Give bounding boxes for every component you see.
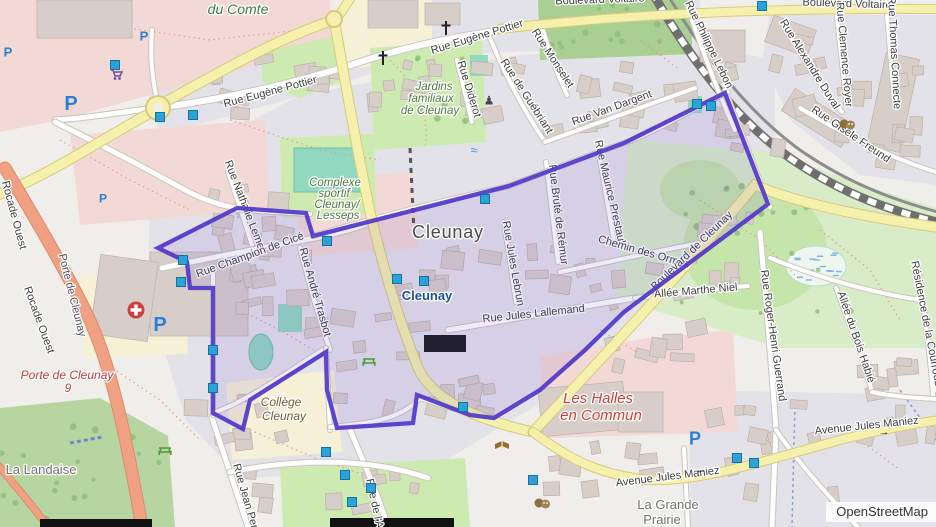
tree bbox=[12, 500, 18, 506]
tree bbox=[759, 311, 763, 315]
openstreetmap-canvas[interactable]: Boulevard VoltaireBoulevard VoltaireRue … bbox=[0, 0, 936, 527]
tree bbox=[816, 267, 821, 272]
boundary-vertex-marker[interactable] bbox=[693, 100, 702, 109]
tree bbox=[91, 477, 95, 481]
tree bbox=[619, 38, 625, 44]
tree bbox=[657, 39, 662, 44]
dark-structure bbox=[40, 519, 152, 527]
tree bbox=[92, 426, 99, 433]
roundabout bbox=[153, 103, 163, 113]
tree bbox=[789, 251, 794, 256]
tree bbox=[624, 7, 629, 12]
boundary-vertex-marker[interactable] bbox=[393, 275, 402, 284]
building bbox=[637, 453, 657, 465]
tree bbox=[52, 488, 58, 494]
monument-icon: ♟ bbox=[484, 93, 495, 107]
place-label: en Commun bbox=[560, 407, 642, 424]
place-label: La Grande bbox=[637, 497, 698, 512]
osm-attribution[interactable]: OpenStreetMap bbox=[826, 502, 936, 522]
building bbox=[481, 105, 504, 124]
tree bbox=[680, 300, 684, 304]
building bbox=[625, 442, 641, 460]
tree bbox=[597, 6, 601, 10]
boundary-vertex-marker[interactable] bbox=[177, 278, 186, 287]
svg-text:P: P bbox=[99, 191, 107, 205]
building bbox=[743, 483, 759, 502]
building bbox=[325, 493, 342, 510]
building bbox=[735, 406, 744, 416]
boundary-vertex-marker[interactable] bbox=[179, 256, 188, 265]
tree bbox=[1, 493, 6, 498]
svg-text:P: P bbox=[4, 45, 13, 60]
tree bbox=[137, 452, 141, 456]
arrow-left-icon: ← bbox=[696, 464, 707, 476]
place-label: familiaux bbox=[408, 93, 455, 105]
building bbox=[790, 399, 808, 409]
svg-text:P: P bbox=[64, 93, 77, 115]
tree bbox=[559, 45, 564, 50]
fountain-icon: ≈ bbox=[470, 143, 477, 158]
tree bbox=[571, 39, 576, 44]
building bbox=[409, 482, 419, 494]
tree bbox=[54, 480, 59, 485]
place-label: Porte de Cleunay bbox=[21, 368, 115, 382]
place-label: Collège bbox=[261, 395, 302, 409]
boundary-vertex-marker[interactable] bbox=[481, 195, 490, 204]
place-label: du Comte bbox=[208, 1, 269, 17]
place-label: La Landaise bbox=[6, 462, 77, 477]
building bbox=[900, 145, 920, 157]
building bbox=[543, 482, 560, 496]
place-label: Cleunay bbox=[262, 409, 307, 423]
building bbox=[429, 64, 442, 77]
building bbox=[274, 430, 289, 444]
boundary-vertex-marker[interactable] bbox=[323, 237, 332, 246]
arrow-right-icon: → bbox=[879, 426, 890, 438]
building bbox=[747, 427, 768, 445]
building bbox=[590, 441, 601, 455]
boundary-vertex-marker[interactable] bbox=[209, 346, 218, 355]
building bbox=[619, 61, 633, 74]
place-label: Prairie bbox=[643, 512, 681, 527]
place-label: Jardins bbox=[414, 81, 452, 93]
boundary-vertex-marker[interactable] bbox=[420, 277, 429, 286]
boundary-vertex-marker[interactable] bbox=[322, 448, 331, 457]
building bbox=[896, 358, 911, 367]
boundary-vertex-marker[interactable] bbox=[750, 459, 759, 468]
tree bbox=[608, 37, 613, 42]
svg-text:♟: ♟ bbox=[484, 93, 495, 107]
tree bbox=[654, 21, 661, 28]
parking-icon: P bbox=[99, 191, 107, 205]
building bbox=[184, 399, 208, 416]
boundary-vertex-marker[interactable] bbox=[209, 384, 218, 393]
parking-icon: P bbox=[689, 428, 701, 448]
building bbox=[685, 318, 708, 337]
place-label: Les Halles bbox=[563, 390, 634, 407]
boundary-vertex-marker[interactable] bbox=[733, 454, 742, 463]
tree bbox=[582, 30, 588, 36]
building bbox=[368, 0, 418, 28]
building bbox=[383, 80, 395, 92]
building bbox=[912, 66, 923, 75]
boundary-vertex-marker[interactable] bbox=[529, 476, 538, 485]
boundary-vertex-marker[interactable] bbox=[459, 403, 468, 412]
building bbox=[925, 426, 936, 444]
tree bbox=[791, 209, 797, 215]
svg-text:P: P bbox=[153, 314, 166, 336]
place-label: Cleunay bbox=[402, 288, 453, 303]
boundary-vertex-marker[interactable] bbox=[707, 102, 716, 111]
svg-text:≈: ≈ bbox=[470, 143, 477, 158]
svg-text:P: P bbox=[140, 29, 149, 44]
boundary-vertex-marker[interactable] bbox=[156, 113, 165, 122]
dark-structure bbox=[330, 518, 454, 527]
place-label: 9 bbox=[65, 381, 72, 395]
building bbox=[369, 92, 382, 107]
building bbox=[581, 480, 600, 499]
building bbox=[268, 192, 290, 211]
building bbox=[743, 405, 756, 416]
building bbox=[770, 138, 786, 157]
boundary-vertex-marker[interactable] bbox=[111, 61, 120, 70]
park-area bbox=[538, 0, 692, 60]
tree bbox=[615, 31, 621, 37]
tree bbox=[71, 495, 77, 501]
building bbox=[470, 61, 493, 75]
svg-text:P: P bbox=[689, 428, 701, 448]
tree bbox=[157, 460, 162, 465]
hospital-icon bbox=[128, 302, 145, 319]
tree bbox=[415, 55, 420, 60]
place-label: Cleunay bbox=[412, 222, 484, 242]
boundary-vertex-marker[interactable] bbox=[758, 2, 767, 11]
building bbox=[425, 3, 460, 25]
roundabout bbox=[333, 18, 335, 20]
tree bbox=[70, 423, 77, 430]
tree bbox=[21, 453, 27, 459]
parking-icon: P bbox=[153, 314, 166, 336]
building bbox=[37, 0, 132, 38]
place-label: Lesseps bbox=[317, 210, 360, 222]
building bbox=[894, 127, 914, 143]
building bbox=[704, 407, 724, 427]
parking-icon: P bbox=[64, 93, 77, 115]
svg-text:→: → bbox=[879, 426, 890, 438]
boundary-vertex-marker[interactable] bbox=[341, 471, 350, 480]
tree bbox=[771, 210, 776, 215]
parking-icon: P bbox=[140, 29, 149, 44]
building bbox=[670, 353, 694, 362]
building bbox=[258, 496, 274, 513]
tree bbox=[557, 41, 562, 46]
tree bbox=[462, 118, 469, 125]
building bbox=[230, 107, 249, 120]
place-label: de Cleunay bbox=[401, 105, 460, 117]
building bbox=[402, 60, 412, 71]
building bbox=[649, 337, 667, 358]
tree bbox=[82, 493, 88, 499]
boundary-vertex-marker[interactable] bbox=[189, 111, 198, 120]
parking-icon: P bbox=[4, 45, 13, 60]
boundary-vertex-marker[interactable] bbox=[367, 484, 376, 493]
map-viewport[interactable]: Boulevard VoltaireBoulevard VoltaireRue … bbox=[0, 0, 936, 527]
tree bbox=[815, 309, 820, 314]
svg-text:←: ← bbox=[696, 464, 707, 476]
building bbox=[252, 483, 274, 498]
boundary-vertex-marker[interactable] bbox=[348, 498, 357, 507]
